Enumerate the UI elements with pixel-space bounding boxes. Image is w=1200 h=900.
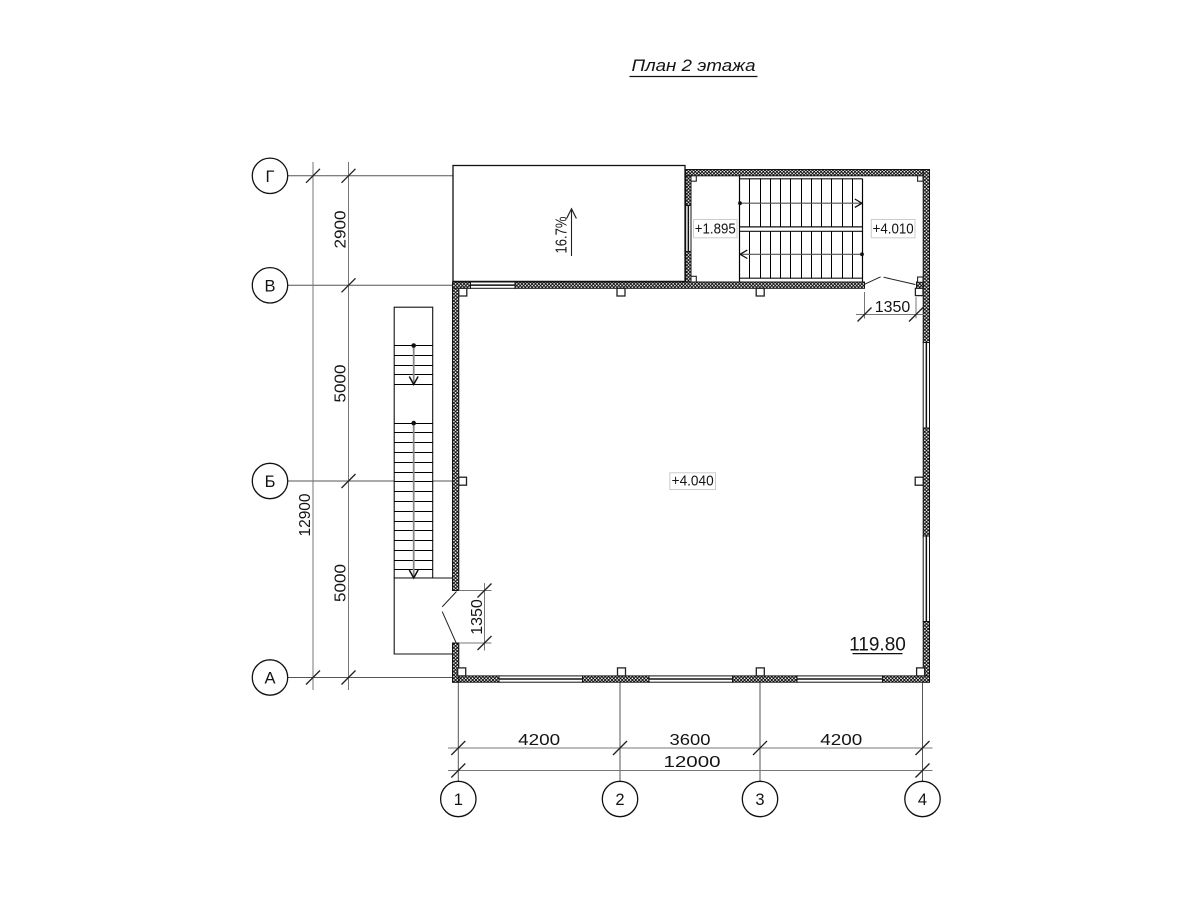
svg-text:4: 4 — [918, 791, 927, 809]
svg-text:4200: 4200 — [820, 732, 862, 749]
svg-text:+4.040: +4.040 — [672, 472, 714, 489]
svg-text:4200: 4200 — [518, 732, 560, 749]
svg-text:12000: 12000 — [664, 754, 721, 771]
svg-text:А: А — [264, 670, 275, 688]
svg-text:1350: 1350 — [875, 299, 911, 316]
svg-text:3: 3 — [755, 791, 764, 809]
svg-text:+4.010: +4.010 — [873, 221, 914, 238]
svg-text:+1.895: +1.895 — [695, 221, 736, 238]
svg-text:1350: 1350 — [469, 599, 486, 635]
svg-text:119.80: 119.80 — [849, 635, 906, 656]
svg-text:5000: 5000 — [333, 564, 350, 602]
svg-text:5000: 5000 — [333, 364, 350, 402]
svg-text:12900: 12900 — [297, 493, 314, 536]
svg-text:16.7%: 16.7% — [554, 216, 571, 253]
svg-text:План 2 этажа: План 2 этажа — [632, 56, 756, 75]
svg-text:2900: 2900 — [333, 210, 350, 248]
svg-text:2: 2 — [615, 791, 624, 809]
svg-text:Г: Г — [266, 168, 275, 186]
svg-text:1: 1 — [454, 791, 463, 809]
svg-text:Б: Б — [265, 473, 276, 491]
svg-text:3600: 3600 — [670, 732, 711, 749]
svg-text:В: В — [264, 277, 275, 295]
